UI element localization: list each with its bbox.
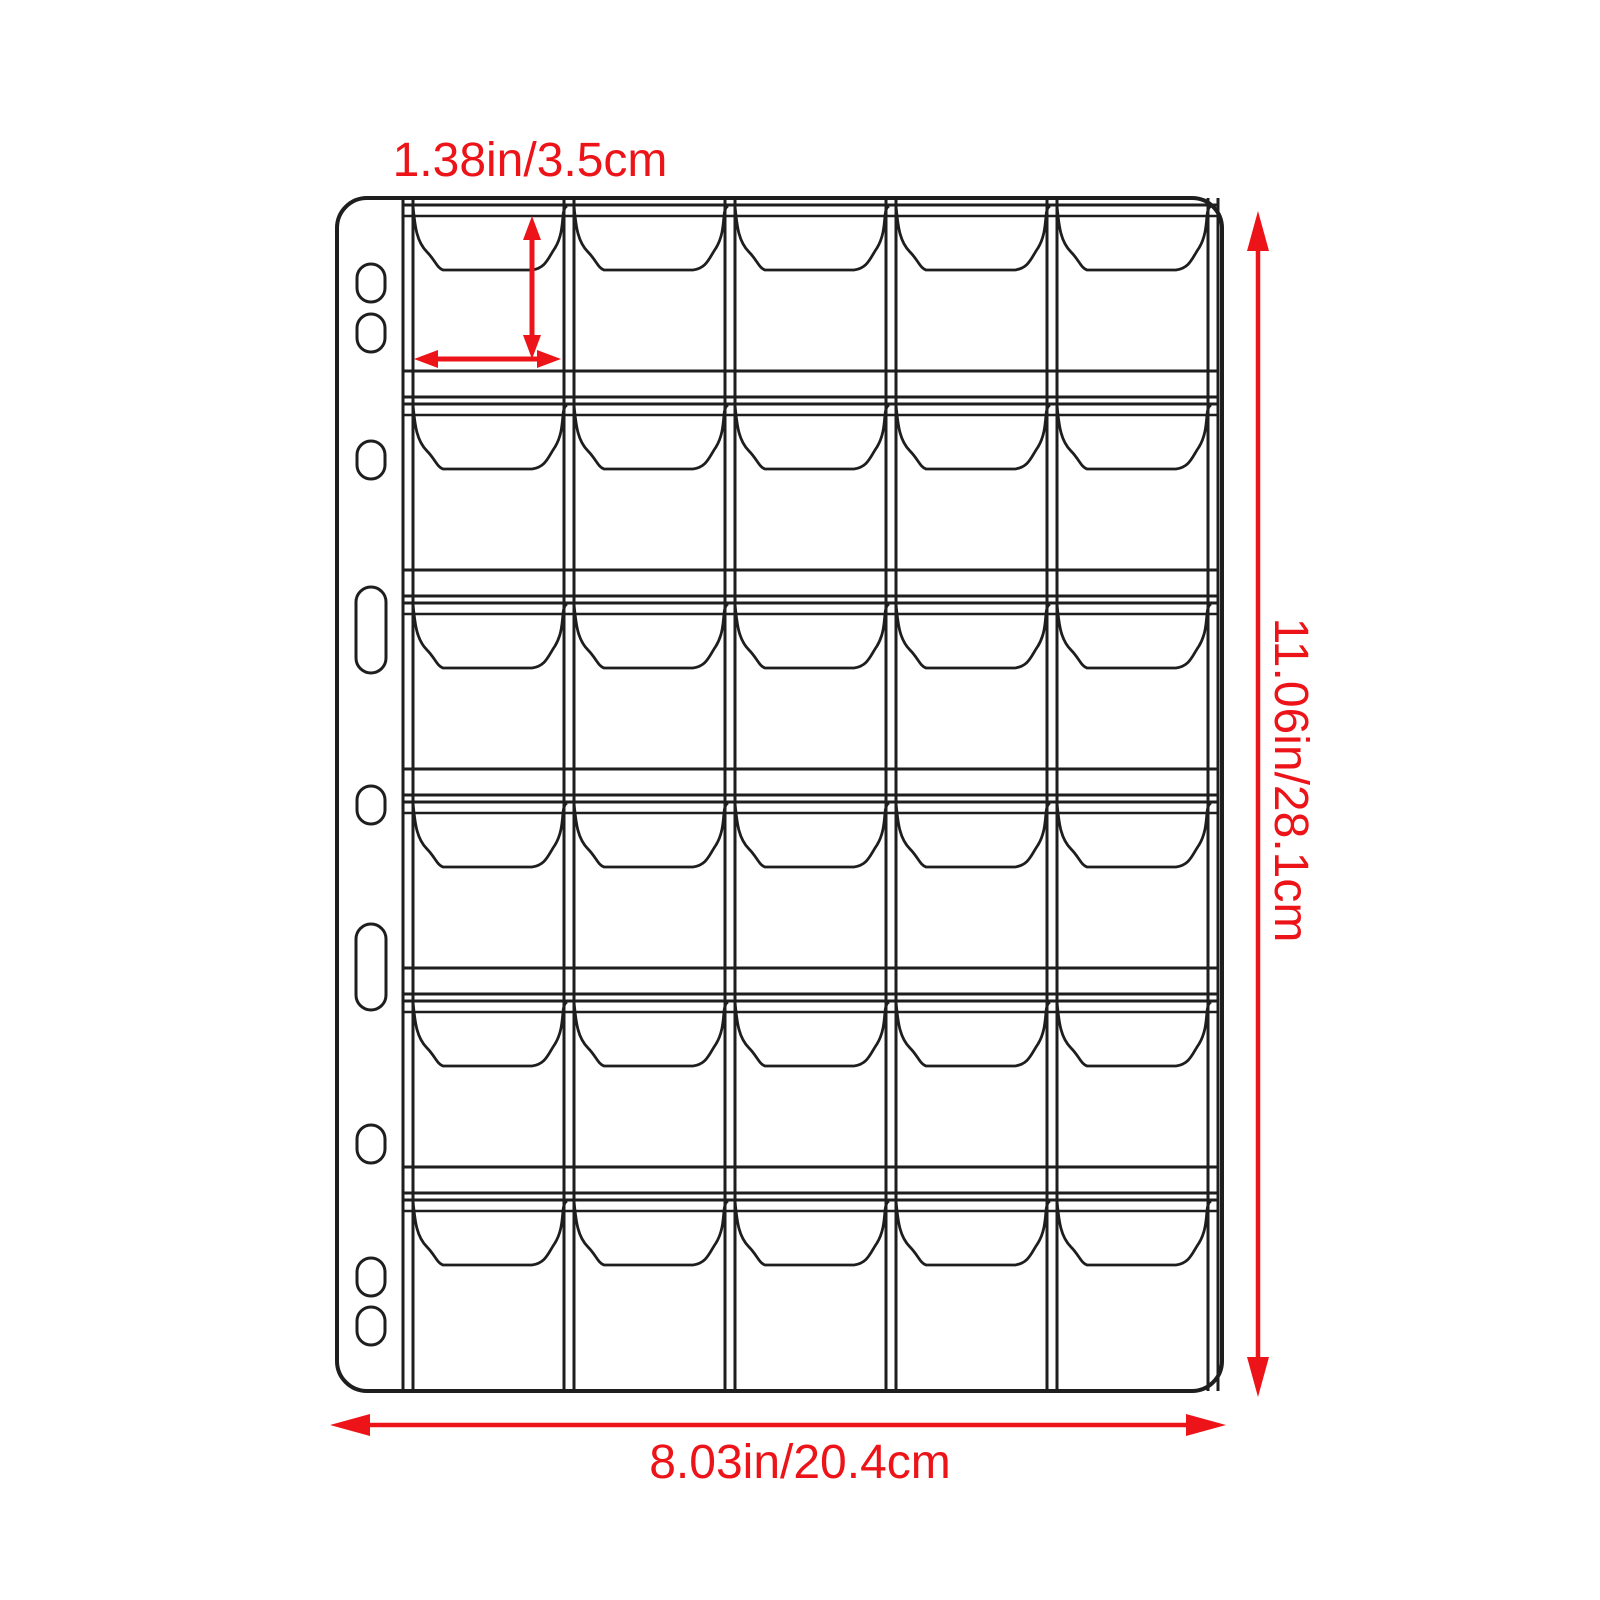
product-diagram-canvas: 1.38in/3.5cm 11.06in/28.1cm 8.03in/20.4c… (0, 0, 1600, 1600)
pocket-size-label: 1.38in/3.5cm (393, 137, 668, 185)
coin-page-line-art (0, 0, 1600, 1600)
dimension-arrows (330, 211, 1269, 1436)
binder-holes (356, 264, 386, 1345)
page-height-label: 11.06in/28.1cm (1266, 618, 1314, 943)
pocket-grid-lines (403, 198, 1218, 1391)
pocket-flaps (413, 206, 1211, 1265)
page-width-label: 8.03in/20.4cm (649, 1439, 951, 1487)
